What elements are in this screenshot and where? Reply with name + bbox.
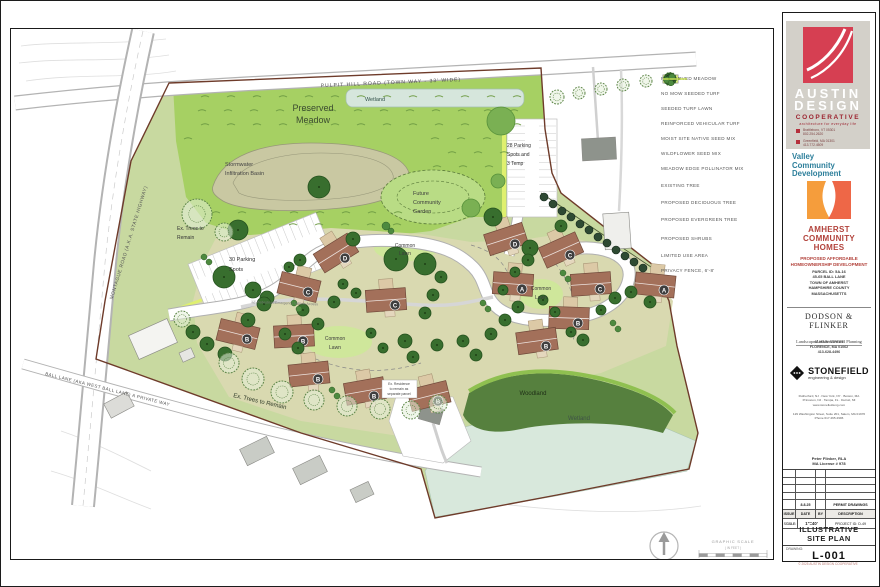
existing-tree (640, 75, 652, 87)
existing-building (350, 481, 374, 502)
existing-tree (573, 87, 585, 99)
label-common-lawn: Common (395, 243, 416, 249)
project-subtitle: PROPOSED AFFORDABLE HOMEOWNERSHIP DEVELO… (783, 256, 875, 267)
existing-tree (219, 353, 239, 373)
parcel-info: PARCEL ID: 5A-16 45-65 BALL LANE TOWN OF… (783, 269, 875, 296)
legend-label: EXISTING TREE (661, 183, 700, 188)
house-unit-badge: C (390, 300, 400, 310)
house-unit-letter: B (316, 377, 321, 383)
shrub (485, 306, 491, 312)
revision-table: 8.8.25 PERMIT DRAWINGS ISSUE DATE BY DES… (783, 469, 875, 529)
site-plan-canvas: DCCBBBBBDCACBBA PULPIT HILL ROAD (TOWN W… (11, 29, 773, 559)
shrub (329, 387, 335, 393)
house-unit-badge: D (510, 239, 520, 249)
graphic-scale-units: ( IN FEET ) (725, 546, 741, 550)
label-ex-residence: Ex. Residence (388, 382, 410, 386)
valley-logo (783, 180, 875, 225)
label-community-garden: Garden (413, 209, 431, 215)
house-unit-badge: A (517, 284, 527, 294)
graphic-scale: GRAPHIC SCALE ( IN FEET ) (699, 539, 767, 558)
legend-label: WILDFLOWER SEED MIX (661, 151, 721, 156)
shrub (206, 259, 212, 265)
stonefield-local-office: 129 Washington Street, Suite 201, Salem,… (783, 412, 875, 421)
shrub (560, 270, 566, 276)
label-wetland-bottom: Wetland (568, 416, 590, 422)
existing-tree (242, 368, 264, 390)
shrub (565, 276, 571, 282)
legend-item: MOIST SITE NATIVE SEED MIX (661, 131, 779, 146)
label-parking-30: Spots (229, 267, 243, 273)
existing-tree (304, 390, 324, 410)
evergreen-tree (621, 252, 629, 260)
legend-item: WILDFLOWER SEED MIX (661, 146, 779, 161)
legend-label: REINFORCED VEHICULAR TURF (661, 121, 740, 126)
drawing-number-box: DRAWING: L-001 (783, 546, 875, 561)
house-unit-letter: B (576, 321, 581, 327)
legend-item: PROPOSED DECIDUOUS TREE (661, 194, 779, 211)
label-preserved-meadow: Meadow (296, 115, 331, 125)
project-name: AMHERST COMMUNITY HOMES (783, 225, 875, 253)
austin-office: Greenfield, MA 01301 413.772.4509 (796, 139, 863, 147)
evergreen-tree (549, 200, 557, 208)
house-unit-badge: B (242, 334, 252, 344)
existing-tree (550, 90, 564, 104)
light-deciduous-tree (491, 174, 505, 188)
graphic-scale-title: GRAPHIC SCALE (712, 539, 755, 544)
austin-office: Brattleboro, VT 05301 802.254.2620 (796, 128, 863, 136)
legend-item: PROPOSED SHRUBS (661, 228, 779, 248)
legend-label: MEADOW EDGE POLLINATOR MIX (661, 166, 744, 171)
evergreen-tree (540, 193, 548, 201)
bullet-square-icon (796, 129, 800, 133)
evergreen-tree (630, 258, 638, 266)
legend-item: NO MOW SEEDED TURF (661, 86, 779, 101)
label-common-lawn: Common (531, 286, 552, 292)
legend-label: PROPOSED SHRUBS (661, 236, 712, 241)
house-unit-badge: B (573, 318, 583, 328)
drawing-page: DCCBBBBBDCACBBA PULPIT HILL ROAD (TOWN W… (0, 0, 880, 587)
house-unit-badge: D (340, 253, 350, 263)
legend-item: REINFORCED VEHICULAR TURF (661, 116, 779, 131)
shrub (296, 306, 302, 312)
existing-tree (215, 223, 233, 241)
bullet-square-icon (796, 140, 800, 144)
evergreen-tree (594, 233, 602, 241)
shrub (610, 320, 616, 326)
legend-label: SEEDED TURF LAWN (661, 106, 713, 111)
evergreen-tree (603, 239, 611, 247)
evergreen-tree (576, 220, 584, 228)
label-ex-residence: to remain as (390, 387, 409, 391)
house-unit-badge: C (565, 250, 575, 260)
shrub (615, 326, 621, 332)
valley-community-development: Valley Community Development (783, 153, 875, 179)
house-unit-letter: B (544, 344, 549, 350)
legend: PRESERVED MEADOWNO MOW SEEDED TURFSEEDED… (661, 71, 779, 277)
label-common-lawn: Lawn (399, 251, 411, 257)
evergreen-tree (567, 213, 575, 221)
existing-tree (429, 395, 447, 413)
existing-tree (337, 396, 357, 416)
light-deciduous-tree (487, 107, 515, 135)
house-unit-letter: B (245, 337, 250, 343)
shrub (480, 300, 486, 306)
north-arrow (650, 532, 678, 559)
legend-label: PROPOSED DECIDUOUS TREE (661, 200, 736, 205)
house-unit-letter: D (343, 256, 348, 262)
label-ex-residence: separate parcel (387, 392, 411, 396)
evergreen-tree (612, 246, 620, 254)
light-deciduous-tree (462, 199, 480, 217)
existing-building (293, 455, 328, 484)
house-unit-badge: B (541, 341, 551, 351)
existing-tree (174, 311, 190, 327)
legend-item: PROPOSED EVERGREEN TREE (661, 211, 779, 228)
drawing-number: L-001 (783, 550, 875, 562)
sheet-title-box: TITLE: ILLUSTRATIVE SITE PLAN (783, 521, 875, 546)
legend-label: NO MOW SEEDED TURF (661, 91, 720, 96)
existing-tree (595, 83, 607, 95)
dodson-address: 40 MAIN STREET FLORENCE, MA 01062 413-62… (783, 340, 875, 355)
legend-label: PROPOSED EVERGREEN TREE (661, 217, 738, 222)
legend-item: PRIVACY FENCE, 6'-8' (661, 263, 779, 277)
austin-name: AUSTIN DESIGN (786, 88, 870, 113)
sheet-title: ILLUSTRATIVE SITE PLAN (783, 526, 875, 543)
revision-header: ISSUE DATE BY DESCRIPTION (783, 510, 875, 519)
label-woodland: Woodland (520, 391, 547, 397)
existing-tree (617, 79, 629, 91)
legend-fence-line-icon (661, 71, 691, 87)
label-parking-28: 28 Parking (507, 143, 531, 149)
label-preserved-meadow: Preserved (292, 103, 333, 113)
house-unit-letter: C (393, 303, 398, 309)
label-ex-trees-left: Ex. Trees to (177, 226, 204, 232)
label-parking-28: Spots and (507, 152, 530, 158)
existing-tree (402, 401, 420, 419)
house-unit-letter: C (568, 253, 573, 259)
label-common-lawn: Lawn (329, 345, 341, 351)
evergreen-tree (558, 207, 566, 215)
existing-building (581, 137, 616, 161)
house-unit-badge: C (303, 287, 313, 297)
stonefield-offices: Rutherford, NJ · New York, NY · Boston, … (783, 394, 875, 407)
label-community-garden: Community (413, 200, 441, 206)
stonefield: STONEFIELD engineering & design (783, 365, 875, 381)
house-unit-badge: B (313, 374, 323, 384)
existing-tree (370, 399, 390, 419)
label-parking-28: 3 Temp (507, 161, 524, 167)
legend-label: MOIST SITE NATIVE SEED MIX (661, 136, 736, 141)
revision-row: 8.8.25 PERMIT DRAWINGS (783, 500, 875, 510)
existing-building (240, 436, 275, 465)
evergreen-tree (585, 226, 593, 234)
legend-item: SEEDED TURF LAWN (661, 101, 779, 116)
house-unit-letter: D (513, 242, 518, 248)
house-unit-badge: C (595, 284, 605, 294)
house-unit-badge: A (659, 285, 669, 295)
label-community-garden: Future (413, 191, 429, 197)
legend-item: MEADOW EDGE POLLINATOR MIX (661, 161, 779, 176)
plan-sheet: DCCBBBBBDCACBBA PULPIT HILL ROAD (TOWN W… (10, 28, 774, 560)
label-parking-30: 30 Parking (229, 257, 255, 263)
austin-cooperative: COOPERATIVE (786, 114, 870, 121)
existing-tree (271, 381, 293, 403)
shrub (201, 254, 207, 260)
label-common-lawn: Common (325, 336, 346, 342)
stonefield-diamond-icon (789, 365, 805, 381)
shrub (334, 393, 340, 399)
existing-tree (182, 199, 212, 229)
house-unit-letter: C (306, 290, 311, 296)
copyright: © 2025 AUSTIN DESIGN COOPERATIVE (782, 562, 874, 566)
legend-item: LIMITED USE AREA (661, 248, 779, 263)
legend-label: PRIVACY FENCE, 6'-8' (661, 268, 715, 273)
label-wetland-top: Wetland (365, 97, 385, 103)
label-stormwater-basin: Stormwater (225, 162, 253, 168)
austin-design-panel: AUSTIN DESIGN COOPERATIVE architecture f… (786, 21, 870, 149)
shrub (388, 228, 394, 234)
evergreen-tree (639, 264, 647, 272)
title-block: AUSTIN DESIGN COOPERATIVE architecture f… (782, 12, 876, 562)
legend-label: LIMITED USE AREA (661, 253, 708, 258)
austin-design-logo (803, 27, 853, 83)
house-unit-letter: A (520, 287, 525, 293)
austin-tagline: architecture for everyday life (786, 122, 870, 126)
label-common-lawn: Lawn (535, 295, 547, 301)
house-unit-letter: C (598, 287, 603, 293)
label-stormwater-basin: Infiltration Basin (225, 171, 264, 177)
legend-item: EXISTING TREE (661, 176, 779, 194)
house-unit-letter: A (662, 288, 667, 294)
label-ex-trees-left: Remain (177, 235, 194, 241)
licensee: Peter Flinker, RLA MA License # 978 (783, 456, 875, 467)
